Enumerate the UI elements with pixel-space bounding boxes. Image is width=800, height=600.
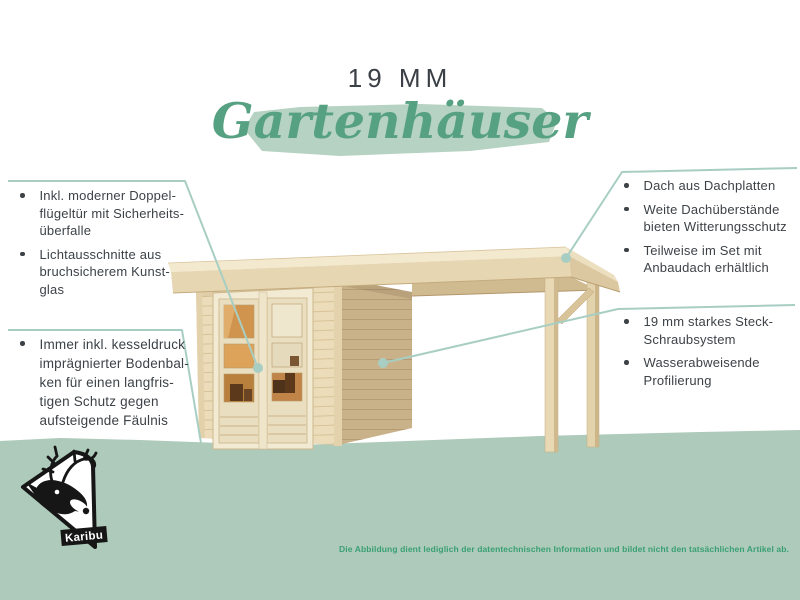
canopy-post-front: [545, 277, 558, 452]
callout-left-top: Inkl. moderner Doppel- flügeltür mit Sic…: [16, 187, 211, 304]
callout-line: flügeltür mit Sicherheits-: [40, 205, 185, 223]
canopy-post-rear: [587, 280, 599, 447]
bullet-item: 19 mm starkes Steck- Schraubsystem: [620, 313, 800, 348]
callout-line: Wasserabweisende: [644, 354, 760, 372]
bullet-dot: [20, 341, 25, 346]
page-title: Gartenhäuser: [0, 92, 800, 150]
connector-dot-wall: [378, 358, 388, 368]
callout-line: Lichtausschnitte aus: [40, 246, 170, 264]
callout-right-top: Dach aus Dachplatten Weite Dachüberständ…: [620, 177, 800, 283]
bullet-item: Teilweise im Set mit Anbaudach erhältlic…: [620, 242, 800, 277]
bullet-dot: [20, 193, 25, 198]
bullet-item: Lichtausschnitte aus bruchsicherem Kunst…: [16, 246, 211, 299]
callout-line: 19 mm starkes Steck-: [644, 313, 774, 331]
door-panes-right: [272, 304, 302, 401]
callout-line: glas: [40, 281, 170, 299]
callout-line: aufsteigende Fäulnis: [40, 411, 189, 430]
callout-line: Teilweise im Set mit: [644, 242, 769, 260]
bullet-item: Dach aus Dachplatten: [620, 177, 800, 195]
corner-trim-right: [334, 276, 342, 446]
connector-dot-roof: [561, 253, 571, 263]
callout-line: Profilierung: [644, 372, 760, 390]
callout-line: Inkl. moderner Doppel-: [40, 187, 185, 205]
callout-line: Anbaudach erhältlich: [644, 259, 769, 277]
connector-dot-door: [253, 363, 263, 373]
promo-image: Karibu 19 MM Gartenhäuser Inkl. moderner…: [0, 0, 800, 600]
callout-line: bieten Witterungsschutz: [644, 218, 787, 236]
callout-line: Weite Dachüberstände: [644, 201, 787, 219]
callout-line: imprägnierter Bodenbal-: [40, 354, 189, 373]
callout-line: Immer inkl. kesseldruck: [40, 335, 189, 354]
thickness-title: 19 MM: [0, 63, 800, 94]
bullet-dot: [624, 183, 629, 188]
bullet-dot: [624, 319, 629, 324]
disclaimer-text: Die Abbildung dient lediglich der datent…: [339, 544, 789, 554]
callout-line: Schraubsystem: [644, 331, 774, 349]
bullet-item: Wasserabweisende Profilierung: [620, 354, 800, 389]
bullet-dot: [624, 207, 629, 212]
side-wall: [338, 278, 412, 445]
callout-line: ken für einen langfris-: [40, 373, 189, 392]
callout-line: überfalle: [40, 222, 185, 240]
shed-illustration: [168, 247, 620, 452]
bullet-item: Inkl. moderner Doppel- flügeltür mit Sic…: [16, 187, 211, 240]
bullet-dot: [624, 360, 629, 365]
bullet-dot: [20, 252, 25, 257]
callout-right-bottom: 19 mm starkes Steck- Schraubsystem Wasse…: [620, 313, 800, 395]
double-door: [213, 288, 313, 449]
canopy: [412, 277, 599, 452]
callout-line: Dach aus Dachplatten: [644, 177, 776, 195]
green-band: [0, 430, 800, 600]
callout-line: bruchsicherem Kunst-: [40, 263, 170, 281]
bullet-item: Weite Dachüberstände bieten Witterungssc…: [620, 201, 800, 236]
bullet-item: Immer inkl. kesseldruck imprägnierter Bo…: [16, 335, 221, 430]
callout-line: tigen Schutz gegen: [40, 392, 189, 411]
callout-left-bottom: Immer inkl. kesseldruck imprägnierter Bo…: [16, 335, 221, 436]
bullet-dot: [624, 248, 629, 253]
